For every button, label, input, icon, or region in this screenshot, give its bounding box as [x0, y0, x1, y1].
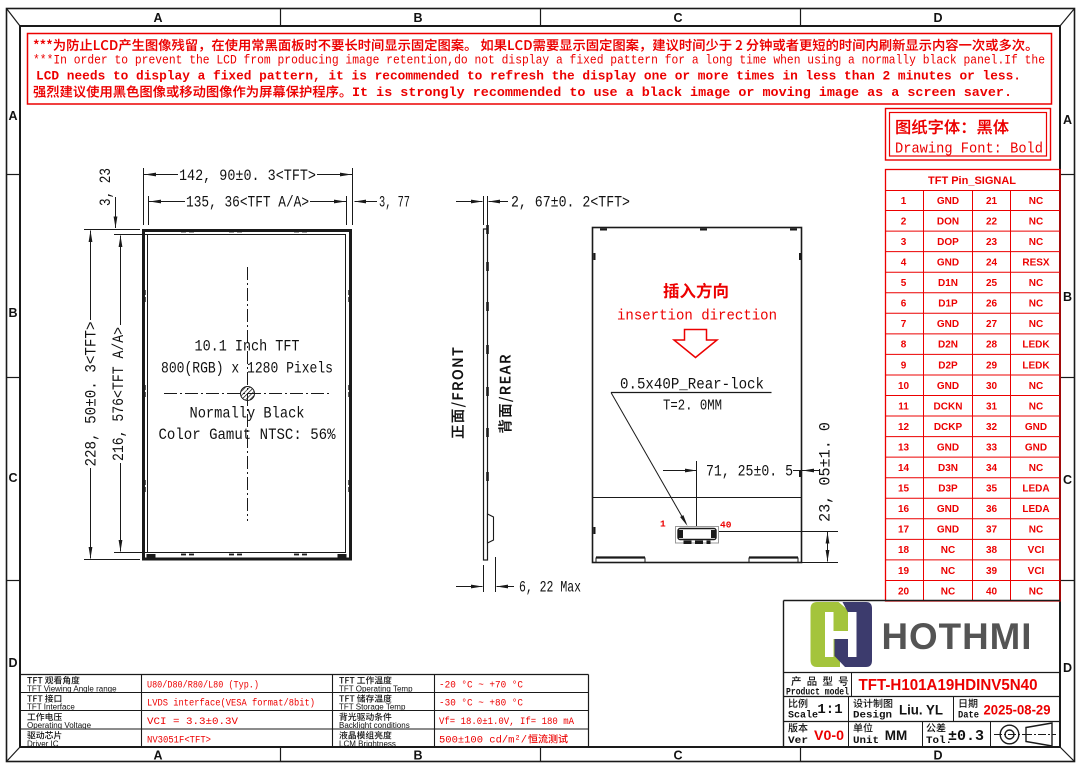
- svg-text:GND: GND: [937, 504, 959, 515]
- svg-text:VCI: VCI: [1028, 566, 1045, 577]
- svg-text:D: D: [8, 656, 17, 670]
- svg-text:D: D: [1063, 661, 1072, 675]
- svg-text:It is strongly recommended to: It is strongly recommended to use a blac…: [352, 86, 1012, 100]
- svg-text:B: B: [8, 306, 17, 320]
- svg-text:NC: NC: [941, 586, 955, 597]
- svg-text:D2N: D2N: [938, 340, 958, 351]
- svg-text:LVDS interface(VESA format/8bi: LVDS interface(VESA format/8bit): [147, 698, 315, 710]
- svg-text:C: C: [8, 471, 17, 485]
- svg-text:142, 90±0. 3<TFT>: 142, 90±0. 3<TFT>: [179, 167, 316, 185]
- svg-text:8: 8: [901, 340, 907, 351]
- svg-text:TFT Interface: TFT Interface: [27, 703, 75, 712]
- svg-text:37: 37: [986, 525, 998, 536]
- svg-text:38: 38: [986, 545, 998, 556]
- svg-text:VCI = 3.3±0.3V: VCI = 3.3±0.3V: [147, 717, 238, 728]
- svg-text:13: 13: [898, 442, 910, 453]
- svg-text:NC: NC: [1029, 381, 1043, 392]
- svg-text:9: 9: [901, 360, 907, 371]
- svg-text:10: 10: [898, 381, 910, 392]
- svg-text:A: A: [153, 11, 162, 25]
- svg-text:22: 22: [986, 216, 998, 227]
- svg-text:B: B: [1063, 290, 1072, 304]
- svg-text:29: 29: [986, 360, 998, 371]
- svg-text:***In order to prevent the LCD: ***In order to prevent the LCD from prod…: [33, 53, 1045, 68]
- svg-text:1: 1: [660, 519, 666, 530]
- svg-text:3: 3: [901, 237, 907, 248]
- svg-text:34: 34: [986, 463, 998, 474]
- svg-text:18: 18: [898, 545, 910, 556]
- svg-text:Drawing Font: Bold: Drawing Font: Bold: [895, 141, 1043, 158]
- svg-text:10.1 Inch TFT: 10.1 Inch TFT: [195, 338, 300, 356]
- svg-text:NC: NC: [1029, 586, 1043, 597]
- svg-text:DCKN: DCKN: [934, 401, 963, 412]
- svg-text:U80/D80/R80/L80 (Typ.): U80/D80/R80/L80 (Typ.): [147, 679, 259, 691]
- svg-text:2025-08-29: 2025-08-29: [984, 703, 1051, 718]
- svg-text:LCM Brightness: LCM Brightness: [339, 739, 396, 748]
- svg-text:Backlight conditions: Backlight conditions: [339, 721, 410, 730]
- svg-text:GND: GND: [937, 258, 959, 269]
- svg-text:216, 576<TFT A/A>: 216, 576<TFT A/A>: [110, 327, 128, 461]
- svg-text:RESX: RESX: [1022, 258, 1050, 269]
- svg-text:±0.3: ±0.3: [948, 728, 984, 745]
- svg-text:D: D: [933, 11, 942, 25]
- svg-text:DON: DON: [937, 216, 959, 227]
- svg-text:71, 25±0. 5: 71, 25±0. 5: [706, 463, 793, 481]
- svg-text:19: 19: [898, 566, 910, 577]
- svg-text:40: 40: [720, 520, 732, 531]
- svg-text:25: 25: [986, 278, 998, 289]
- svg-text:A: A: [8, 109, 17, 123]
- svg-text:NC: NC: [1029, 196, 1043, 207]
- svg-text:0.5x40P_Rear-lock: 0.5x40P_Rear-lock: [620, 376, 764, 394]
- svg-text:MM: MM: [885, 728, 908, 743]
- svg-text:TFT Storage Temp: TFT Storage Temp: [339, 703, 406, 712]
- svg-text:D3N: D3N: [938, 463, 958, 474]
- svg-text:T=2. 0MM: T=2. 0MM: [663, 398, 722, 415]
- svg-text:Design: Design: [853, 710, 892, 722]
- svg-text:3, 23: 3, 23: [97, 168, 115, 206]
- svg-text:4: 4: [901, 258, 907, 269]
- svg-text:C: C: [673, 749, 682, 763]
- svg-text:15: 15: [898, 484, 910, 495]
- svg-text:31: 31: [986, 401, 998, 412]
- svg-text:V0-0: V0-0: [814, 728, 844, 743]
- svg-text:GND: GND: [1025, 422, 1047, 433]
- svg-text:GND: GND: [937, 381, 959, 392]
- svg-text:135, 36<TFT A/A>: 135, 36<TFT A/A>: [186, 194, 309, 212]
- svg-text:39: 39: [986, 566, 998, 577]
- svg-text:12: 12: [898, 422, 910, 433]
- svg-text:D2P: D2P: [938, 360, 958, 371]
- svg-text:LEDK: LEDK: [1022, 360, 1050, 371]
- svg-text:23, 05±1. 0: 23, 05±1. 0: [817, 422, 835, 522]
- svg-text:NC: NC: [1029, 278, 1043, 289]
- svg-text:C: C: [673, 11, 682, 25]
- svg-text:Liu. YL: Liu. YL: [899, 703, 943, 718]
- svg-text:Driver IC: Driver IC: [27, 739, 59, 748]
- svg-text:DOP: DOP: [937, 237, 959, 248]
- svg-text:Scale: Scale: [788, 710, 818, 722]
- svg-text:21: 21: [986, 196, 998, 207]
- svg-text:C: C: [1063, 473, 1072, 487]
- svg-text:Ver: Ver: [788, 736, 808, 747]
- svg-text:TFT Operating Temp: TFT Operating Temp: [339, 684, 413, 693]
- svg-text:GND: GND: [937, 319, 959, 330]
- svg-text:20: 20: [898, 586, 910, 597]
- svg-text:27: 27: [986, 319, 998, 330]
- svg-text:GND: GND: [937, 525, 959, 536]
- svg-text:40: 40: [986, 586, 998, 597]
- svg-text:NV3051F<TFT>: NV3051F<TFT>: [147, 735, 211, 746]
- svg-text:LEDA: LEDA: [1022, 484, 1049, 495]
- svg-text:B: B: [413, 11, 422, 25]
- svg-text:Normally Black: Normally Black: [190, 405, 305, 423]
- svg-text:228, 50±0. 3<TFT>: 228, 50±0. 3<TFT>: [83, 322, 101, 467]
- svg-text:TFT Viewing Angle range: TFT Viewing Angle range: [27, 684, 117, 693]
- svg-text:26: 26: [986, 299, 998, 310]
- svg-text:GND: GND: [937, 196, 959, 207]
- svg-text:32: 32: [986, 422, 998, 433]
- svg-text:28: 28: [986, 340, 998, 351]
- svg-text:NC: NC: [1029, 525, 1043, 536]
- svg-text:A: A: [1063, 113, 1072, 127]
- svg-text:23: 23: [986, 237, 998, 248]
- svg-text:B: B: [413, 749, 422, 763]
- svg-text:NC: NC: [1029, 319, 1043, 330]
- svg-text:HOTHMI: HOTHMI: [882, 615, 1033, 657]
- svg-text:36: 36: [986, 504, 998, 515]
- svg-text:NC: NC: [941, 566, 955, 577]
- svg-text:TFT Pin_SIGNAL: TFT Pin_SIGNAL: [928, 175, 1016, 187]
- svg-text:VCI: VCI: [1028, 545, 1045, 556]
- svg-text:33: 33: [986, 442, 998, 453]
- svg-text:Product model: Product model: [786, 687, 849, 699]
- svg-text:NC: NC: [1029, 463, 1043, 474]
- svg-text:Operating Voltage: Operating Voltage: [27, 721, 92, 730]
- svg-text:Vf= 18.0±1.0V, If= 180 mA: Vf= 18.0±1.0V, If= 180 mA: [439, 716, 574, 728]
- svg-text:1: 1: [901, 196, 907, 207]
- svg-text:NC: NC: [1029, 401, 1043, 412]
- svg-text:TFT-H101A19HDINV5N40: TFT-H101A19HDINV5N40: [859, 677, 1038, 694]
- svg-text:LCD needs to display a fixed p: LCD needs to display a fixed pattern, it…: [36, 70, 1021, 84]
- svg-text:insertion direction: insertion direction: [617, 308, 777, 325]
- svg-text:-30 °C ~ +80 °C: -30 °C ~ +80 °C: [439, 698, 523, 710]
- svg-text:Date: Date: [958, 711, 979, 722]
- svg-text:LEDA: LEDA: [1022, 504, 1049, 515]
- svg-text:NC: NC: [1029, 299, 1043, 310]
- svg-text:LEDK: LEDK: [1022, 340, 1050, 351]
- svg-text:-20 °C ~ +70 °C: -20 °C ~ +70 °C: [439, 679, 523, 691]
- svg-text:800(RGB) x 1280 Pixels: 800(RGB) x 1280 Pixels: [161, 360, 333, 378]
- svg-text:30: 30: [986, 381, 998, 392]
- svg-text:D3P: D3P: [938, 484, 958, 495]
- svg-text:6: 6: [901, 299, 907, 310]
- svg-text:Unit: Unit: [853, 735, 879, 747]
- svg-text:6, 22 Max: 6, 22 Max: [519, 579, 581, 597]
- svg-text:NC: NC: [941, 545, 955, 556]
- svg-text:500±100 cd/m²/: 500±100 cd/m²/: [439, 734, 527, 746]
- svg-text:NC: NC: [1029, 237, 1043, 248]
- svg-text:17: 17: [898, 525, 910, 536]
- svg-text:GND: GND: [937, 442, 959, 453]
- svg-text:DCKP: DCKP: [934, 422, 963, 433]
- svg-text:35: 35: [986, 484, 998, 495]
- svg-text:24: 24: [986, 258, 998, 269]
- svg-text:D1P: D1P: [938, 299, 958, 310]
- svg-text:11: 11: [898, 401, 909, 412]
- svg-text:16: 16: [898, 504, 910, 515]
- svg-text:D1N: D1N: [938, 278, 958, 289]
- svg-text:A: A: [153, 749, 162, 763]
- svg-text:2, 67±0. 2<TFT>: 2, 67±0. 2<TFT>: [511, 194, 630, 212]
- svg-text:3, 77: 3, 77: [379, 194, 410, 212]
- svg-text:5: 5: [901, 278, 907, 289]
- svg-text:2: 2: [901, 216, 907, 227]
- svg-text:14: 14: [898, 463, 910, 474]
- svg-text:7: 7: [901, 319, 907, 330]
- svg-text:Color Gamut NTSC: 56%: Color Gamut NTSC: 56%: [159, 426, 336, 444]
- svg-text:GND: GND: [1025, 442, 1047, 453]
- svg-text:NC: NC: [1029, 216, 1043, 227]
- svg-text:D: D: [933, 749, 942, 763]
- svg-text:1:1: 1:1: [817, 702, 842, 718]
